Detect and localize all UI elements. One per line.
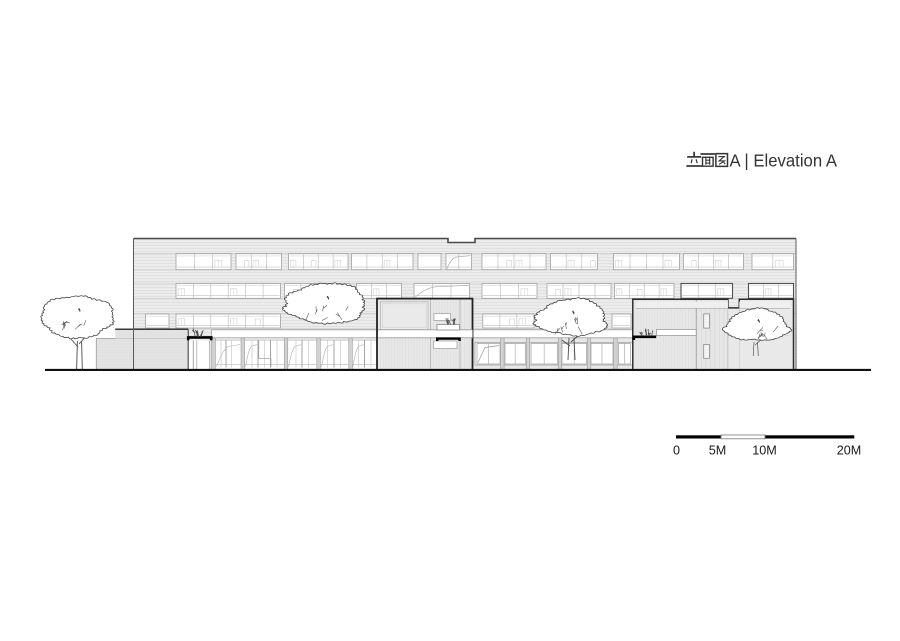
svg-text:5M: 5M bbox=[709, 444, 727, 458]
svg-text:20M: 20M bbox=[837, 444, 862, 458]
svg-text:10M: 10M bbox=[752, 444, 777, 458]
svg-text:A | Elevation A: A | Elevation A bbox=[730, 150, 838, 170]
svg-text:0: 0 bbox=[673, 444, 680, 458]
